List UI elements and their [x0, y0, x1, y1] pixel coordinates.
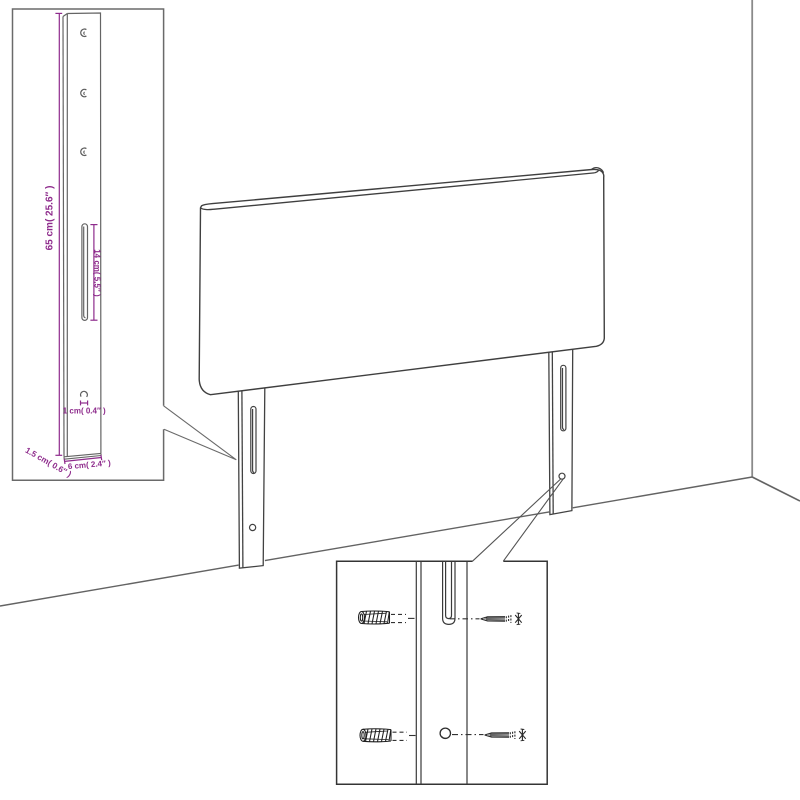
- svg-text:65 cm( 25.6″ ): 65 cm( 25.6″ ): [45, 186, 56, 251]
- svg-text:1 cm( 0.4″ ): 1 cm( 0.4″ ): [63, 407, 106, 416]
- svg-text:14 cm( 5.5″ ): 14 cm( 5.5″ ): [93, 249, 102, 297]
